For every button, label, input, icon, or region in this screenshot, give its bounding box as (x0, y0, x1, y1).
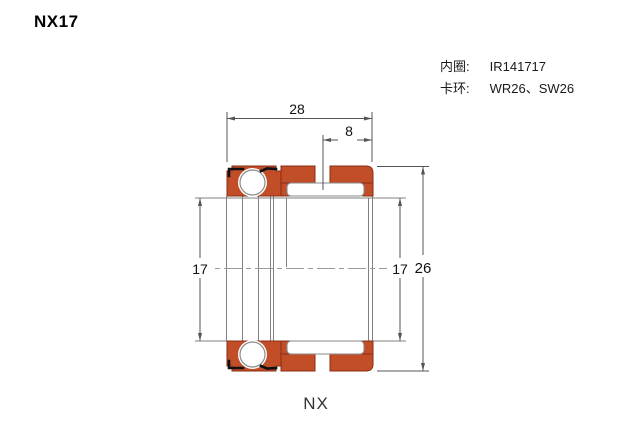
dim-bore-right: 17 (392, 261, 408, 277)
page: NX17 内圈: IR141717 卡环: WR26、SW26 (0, 0, 640, 440)
series-label: NX (303, 394, 329, 413)
ball-upper (240, 170, 265, 195)
dim-outer-diameter: 26 (415, 260, 432, 277)
needle-race-upper-right (330, 166, 373, 183)
dim-groove-offset: 8 (345, 123, 353, 139)
bearing-cross-section-drawing: 28 8 17 17 26 NX (0, 0, 640, 440)
dim-overall-width: 28 (289, 101, 305, 117)
needle-cage-upper (287, 183, 364, 196)
needle-cage-lower (287, 341, 364, 354)
needle-race-lower-right (330, 354, 373, 371)
needle-race-upper-left (281, 166, 315, 183)
dimension-lines (198, 112, 429, 371)
needle-race-lower-left (281, 354, 315, 371)
dim-bore-left: 17 (192, 261, 208, 277)
ball-lower (240, 342, 265, 367)
